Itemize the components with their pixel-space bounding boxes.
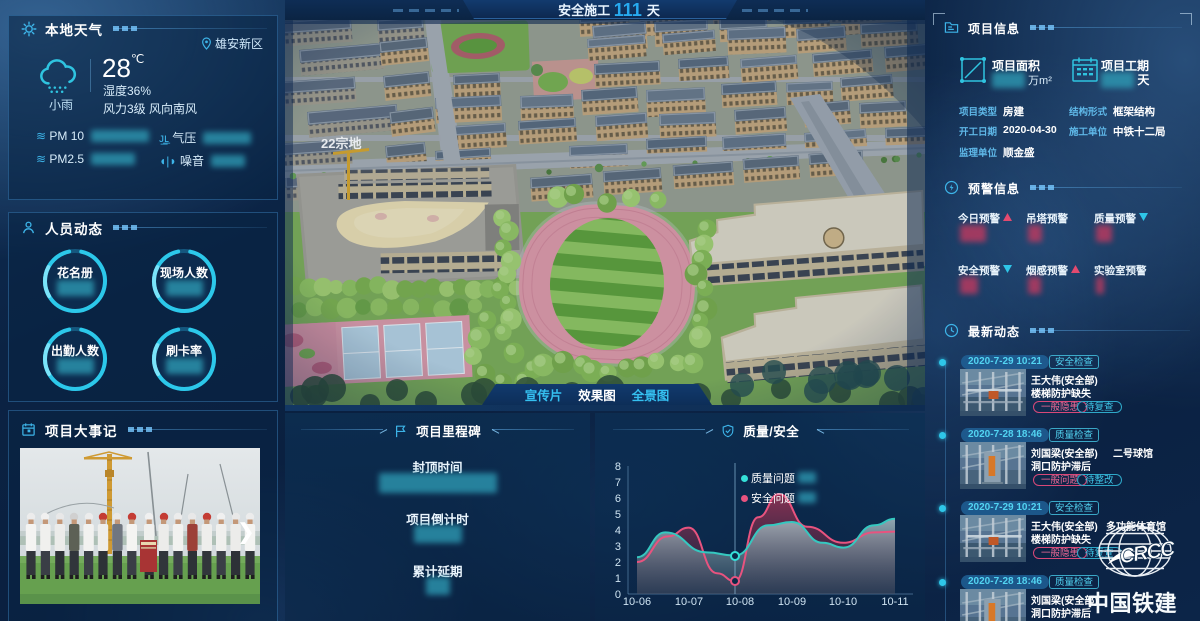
svg-text:10-11: 10-11: [881, 596, 908, 608]
svg-text:5: 5: [615, 509, 621, 521]
svg-text:1: 1: [615, 573, 621, 585]
svg-text:8: 8: [615, 461, 621, 473]
svg-text:10-10: 10-10: [829, 596, 857, 608]
svg-text:CRCC: CRCC: [1118, 537, 1176, 569]
svg-text:6: 6: [615, 493, 621, 505]
svg-text:10-07: 10-07: [675, 596, 703, 608]
svg-text:10-06: 10-06: [623, 596, 651, 608]
svg-text:7: 7: [615, 477, 621, 489]
svg-text:10-09: 10-09: [778, 596, 806, 608]
svg-text:2: 2: [615, 557, 621, 569]
svg-text:4: 4: [615, 525, 621, 537]
svg-text:10-08: 10-08: [726, 596, 754, 608]
svg-text:3: 3: [615, 541, 621, 553]
svg-text:0: 0: [615, 589, 621, 601]
